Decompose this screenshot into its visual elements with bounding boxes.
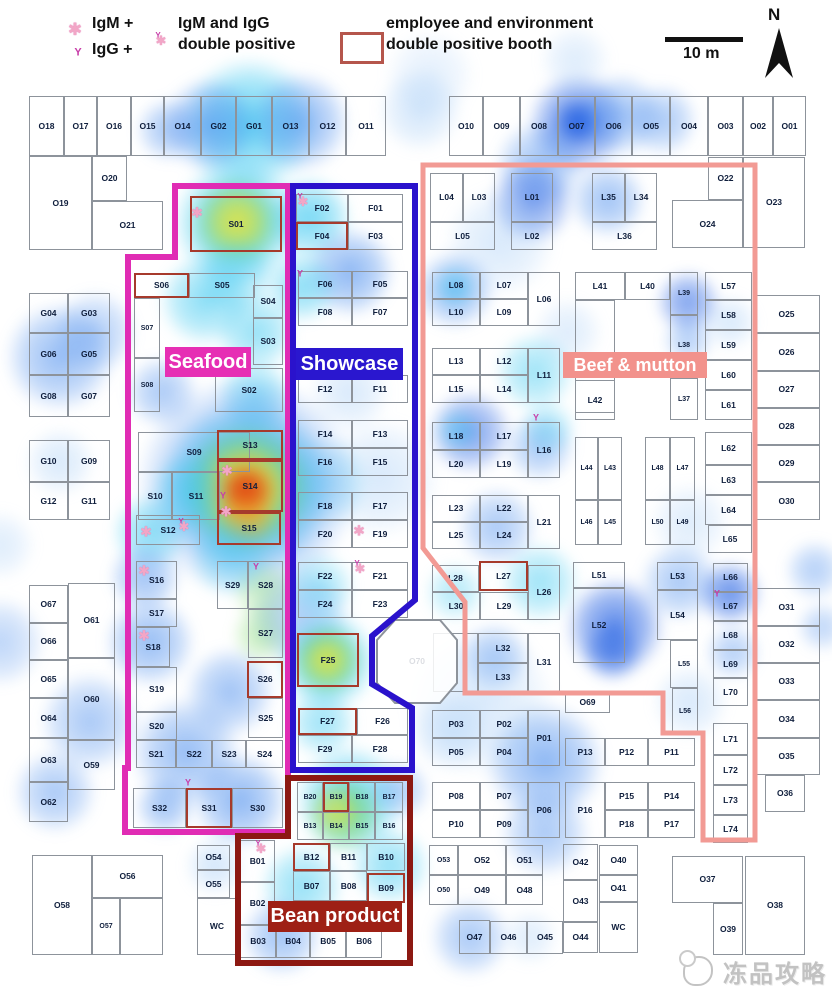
- booth-legend-label-line2: double positive booth: [386, 36, 552, 54]
- double-positive-marker-icon: Y✱: [256, 841, 267, 855]
- booth-legend-label-line1: employee and environment: [386, 15, 593, 33]
- double-positive-booth-icon: [340, 32, 384, 64]
- igg-positive-icon: Y: [714, 590, 720, 597]
- scale-bar: [665, 37, 743, 42]
- igm-positive-icon: ✱: [138, 630, 150, 641]
- igg-y-icon: Y: [74, 49, 81, 58]
- double-positive-label-line1: IgM and IgG: [178, 15, 270, 33]
- watermark-text: 冻品攻略: [723, 954, 827, 989]
- igg-positive-icon: Y: [185, 779, 191, 786]
- igm-positive-icon: ✱: [221, 465, 233, 476]
- double-positive-marker-icon: Y✱: [355, 561, 366, 575]
- scale-bar-label: 10 m: [683, 45, 719, 63]
- north-label: N: [768, 5, 780, 25]
- igg-positive-icon: Y: [220, 492, 226, 499]
- igg-positive-icon: Y: [533, 414, 539, 421]
- igm-positive-icon: ✱: [220, 506, 232, 517]
- igm-legend-label: IgM +: [92, 15, 133, 33]
- igg-positive-icon: Y: [297, 270, 303, 277]
- double-positive-marker-icon: Y✱: [179, 519, 190, 533]
- igm-positive-icon: ✱: [191, 207, 203, 218]
- double-positive-icon: Y✱: [156, 33, 167, 47]
- igm-flower-icon: ✱: [68, 23, 82, 37]
- igm-positive-icon: ✱: [138, 565, 150, 576]
- igm-positive-icon: ✱: [140, 526, 152, 537]
- double-positive-marker-icon: Y✱: [298, 194, 309, 208]
- igg-positive-icon: Y: [253, 563, 259, 570]
- double-positive-label-line2: double positive: [178, 36, 295, 54]
- igm-positive-icon: ✱: [353, 525, 365, 536]
- watermark-logo-icon: [683, 956, 713, 986]
- igg-legend-label: IgG +: [92, 41, 132, 59]
- positive-marker-layer: ✱Y✱Y✱Y✱✱Y✱✱✱Y✱Y✱YYYY✱: [0, 0, 832, 1006]
- market-map-figure: O18O17O16O15O14G02G01O13O12O11O10O09O08O…: [0, 0, 832, 1006]
